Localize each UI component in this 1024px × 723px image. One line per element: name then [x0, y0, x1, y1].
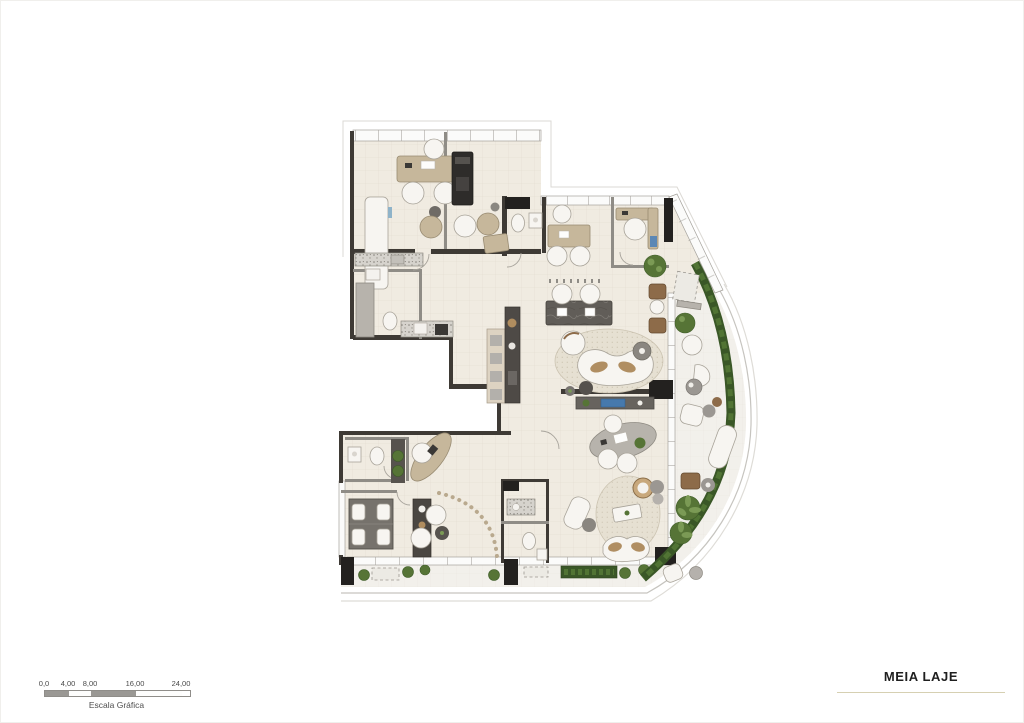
tv: [601, 399, 625, 407]
palm-leaf: [678, 522, 684, 533]
stool: [582, 518, 596, 532]
laptop: [557, 308, 567, 316]
plant-pot-icon: [393, 466, 404, 477]
decor-item: [706, 483, 711, 488]
scale-segment: [69, 691, 91, 696]
wall-bath-bl-south: [345, 479, 395, 482]
shelf-box: [490, 371, 502, 382]
lounge-chair: [681, 473, 700, 489]
chair: [547, 246, 567, 266]
chair: [454, 215, 476, 237]
lounge-chair: [649, 318, 666, 333]
shelf-box: [490, 335, 502, 346]
chair: [424, 139, 444, 159]
decor-item: [419, 506, 426, 513]
table-item: [689, 383, 694, 388]
chair: [377, 504, 390, 520]
scale-label: 4,00: [61, 679, 76, 688]
window-band-top-right: [541, 196, 669, 205]
plant-small: [583, 400, 590, 407]
planter-box: [524, 567, 548, 577]
floor-plan-drawing: [1, 1, 1024, 723]
pouf: [653, 494, 664, 505]
pouf: [703, 405, 716, 418]
marble-table: [546, 301, 612, 325]
armchair: [561, 331, 585, 355]
wall-sink: [366, 269, 380, 280]
shelf-box: [490, 389, 502, 400]
pillar: [504, 559, 518, 585]
decor-item: [419, 522, 426, 529]
shrub: [420, 565, 430, 575]
plant-leaf: [648, 259, 655, 266]
scale-bar-rule: [44, 690, 191, 697]
shrub: [489, 570, 500, 581]
wall-meeting-north: [341, 490, 397, 493]
wall-wc-top-east: [542, 197, 546, 253]
shaft-column-2: [503, 481, 519, 491]
scale-caption: Escala Gráfica: [44, 700, 189, 710]
vending-slot: [456, 177, 469, 191]
cabinet-handle: [388, 207, 392, 218]
planter-box: [673, 271, 700, 302]
chair: [377, 529, 390, 545]
wall-wc-bottom-mid: [501, 521, 549, 524]
toilet: [383, 312, 397, 330]
chair: [412, 443, 432, 463]
wall-bath-bl-east: [406, 439, 409, 481]
wall-west: [350, 131, 354, 339]
column-east: [664, 198, 673, 242]
scale-label: 8,00: [83, 679, 98, 688]
shrub: [359, 570, 370, 581]
plant-pot-icon: [675, 313, 695, 333]
floor-plan-sheet: 0,0 4,00 8,00 16,00 24,00 Escala Gráfica…: [0, 0, 1024, 723]
kitchen-sink: [391, 255, 404, 264]
planter-box: [372, 568, 399, 580]
scale-label: 24,00: [172, 679, 191, 688]
desk-item: [622, 211, 628, 215]
round-chair: [426, 505, 446, 525]
cooktop: [435, 324, 448, 335]
side-table: [650, 300, 664, 314]
toilet: [523, 533, 536, 550]
scale-bar: 0,0 4,00 8,00 16,00 24,00 Escala Gráfica: [36, 675, 216, 715]
chair: [352, 504, 365, 520]
plant-leaf: [679, 316, 685, 322]
scale-label: 0,0: [39, 679, 49, 688]
title-block: MEIA LAJE: [837, 669, 1005, 693]
shrub: [403, 567, 414, 578]
plant-small: [568, 389, 572, 393]
counter: [355, 253, 423, 266]
armchair: [477, 213, 499, 235]
sink-basin: [513, 504, 520, 511]
scale-segment: [91, 691, 136, 696]
column-cross: [649, 380, 673, 399]
chair: [552, 284, 572, 304]
laptop: [559, 231, 569, 238]
side-desk: [483, 233, 509, 253]
sink-basin: [533, 218, 538, 223]
plant-pot-icon: [644, 255, 666, 277]
round-chair: [411, 528, 431, 548]
plant-leaf: [656, 266, 662, 272]
pouf: [690, 567, 703, 580]
toilet: [512, 214, 525, 232]
chair: [553, 205, 571, 223]
palm-leaf: [685, 495, 691, 507]
desk-item: [405, 163, 412, 168]
sink: [537, 549, 547, 560]
chair: [624, 218, 646, 240]
plant-small: [625, 511, 630, 516]
chair: [617, 453, 637, 473]
sink-basin: [352, 452, 357, 457]
lounge-chair: [649, 284, 666, 299]
counter: [507, 499, 535, 515]
table-item: [639, 348, 645, 354]
side-table: [579, 381, 593, 395]
chair: [604, 415, 622, 433]
decor-item: [638, 401, 643, 406]
shrub: [620, 568, 631, 579]
laptop: [421, 161, 435, 169]
scale-segment: [136, 691, 182, 696]
wall-notch-east: [449, 339, 453, 388]
plant-small: [440, 531, 444, 535]
plant-pot-icon: [393, 451, 404, 462]
palm-leaf: [689, 507, 701, 513]
pouf: [650, 480, 664, 494]
bowl: [508, 319, 517, 328]
wall-lower-block-north: [339, 431, 511, 435]
toilet: [370, 447, 384, 465]
armchair: [420, 216, 442, 238]
stool: [491, 203, 500, 212]
shower: [356, 283, 374, 337]
pillar: [341, 557, 354, 585]
chair: [352, 529, 365, 545]
wall-office-tr-west: [611, 197, 614, 267]
round-table: [686, 379, 702, 395]
scale-segment: [45, 691, 69, 696]
chair: [402, 182, 424, 204]
pouf: [712, 397, 722, 407]
shelf-box: [490, 353, 502, 364]
chair: [570, 246, 590, 266]
counter-sink: [414, 323, 427, 334]
palm-leaf: [682, 532, 693, 538]
laptop: [650, 236, 657, 247]
wall-lower-west: [339, 433, 343, 483]
shaft-column: [505, 197, 530, 209]
plan-title: MEIA LAJE: [837, 669, 1005, 684]
chair: [598, 449, 618, 469]
sink-small: [509, 343, 516, 350]
laptop: [585, 308, 595, 316]
round-chair: [682, 335, 702, 355]
vending-screen: [455, 157, 470, 164]
title-underline: [837, 692, 1005, 693]
appliance: [508, 371, 517, 385]
scale-label: 16,00: [126, 679, 145, 688]
chair: [580, 284, 600, 304]
wicker-chair-seat: [638, 483, 649, 494]
